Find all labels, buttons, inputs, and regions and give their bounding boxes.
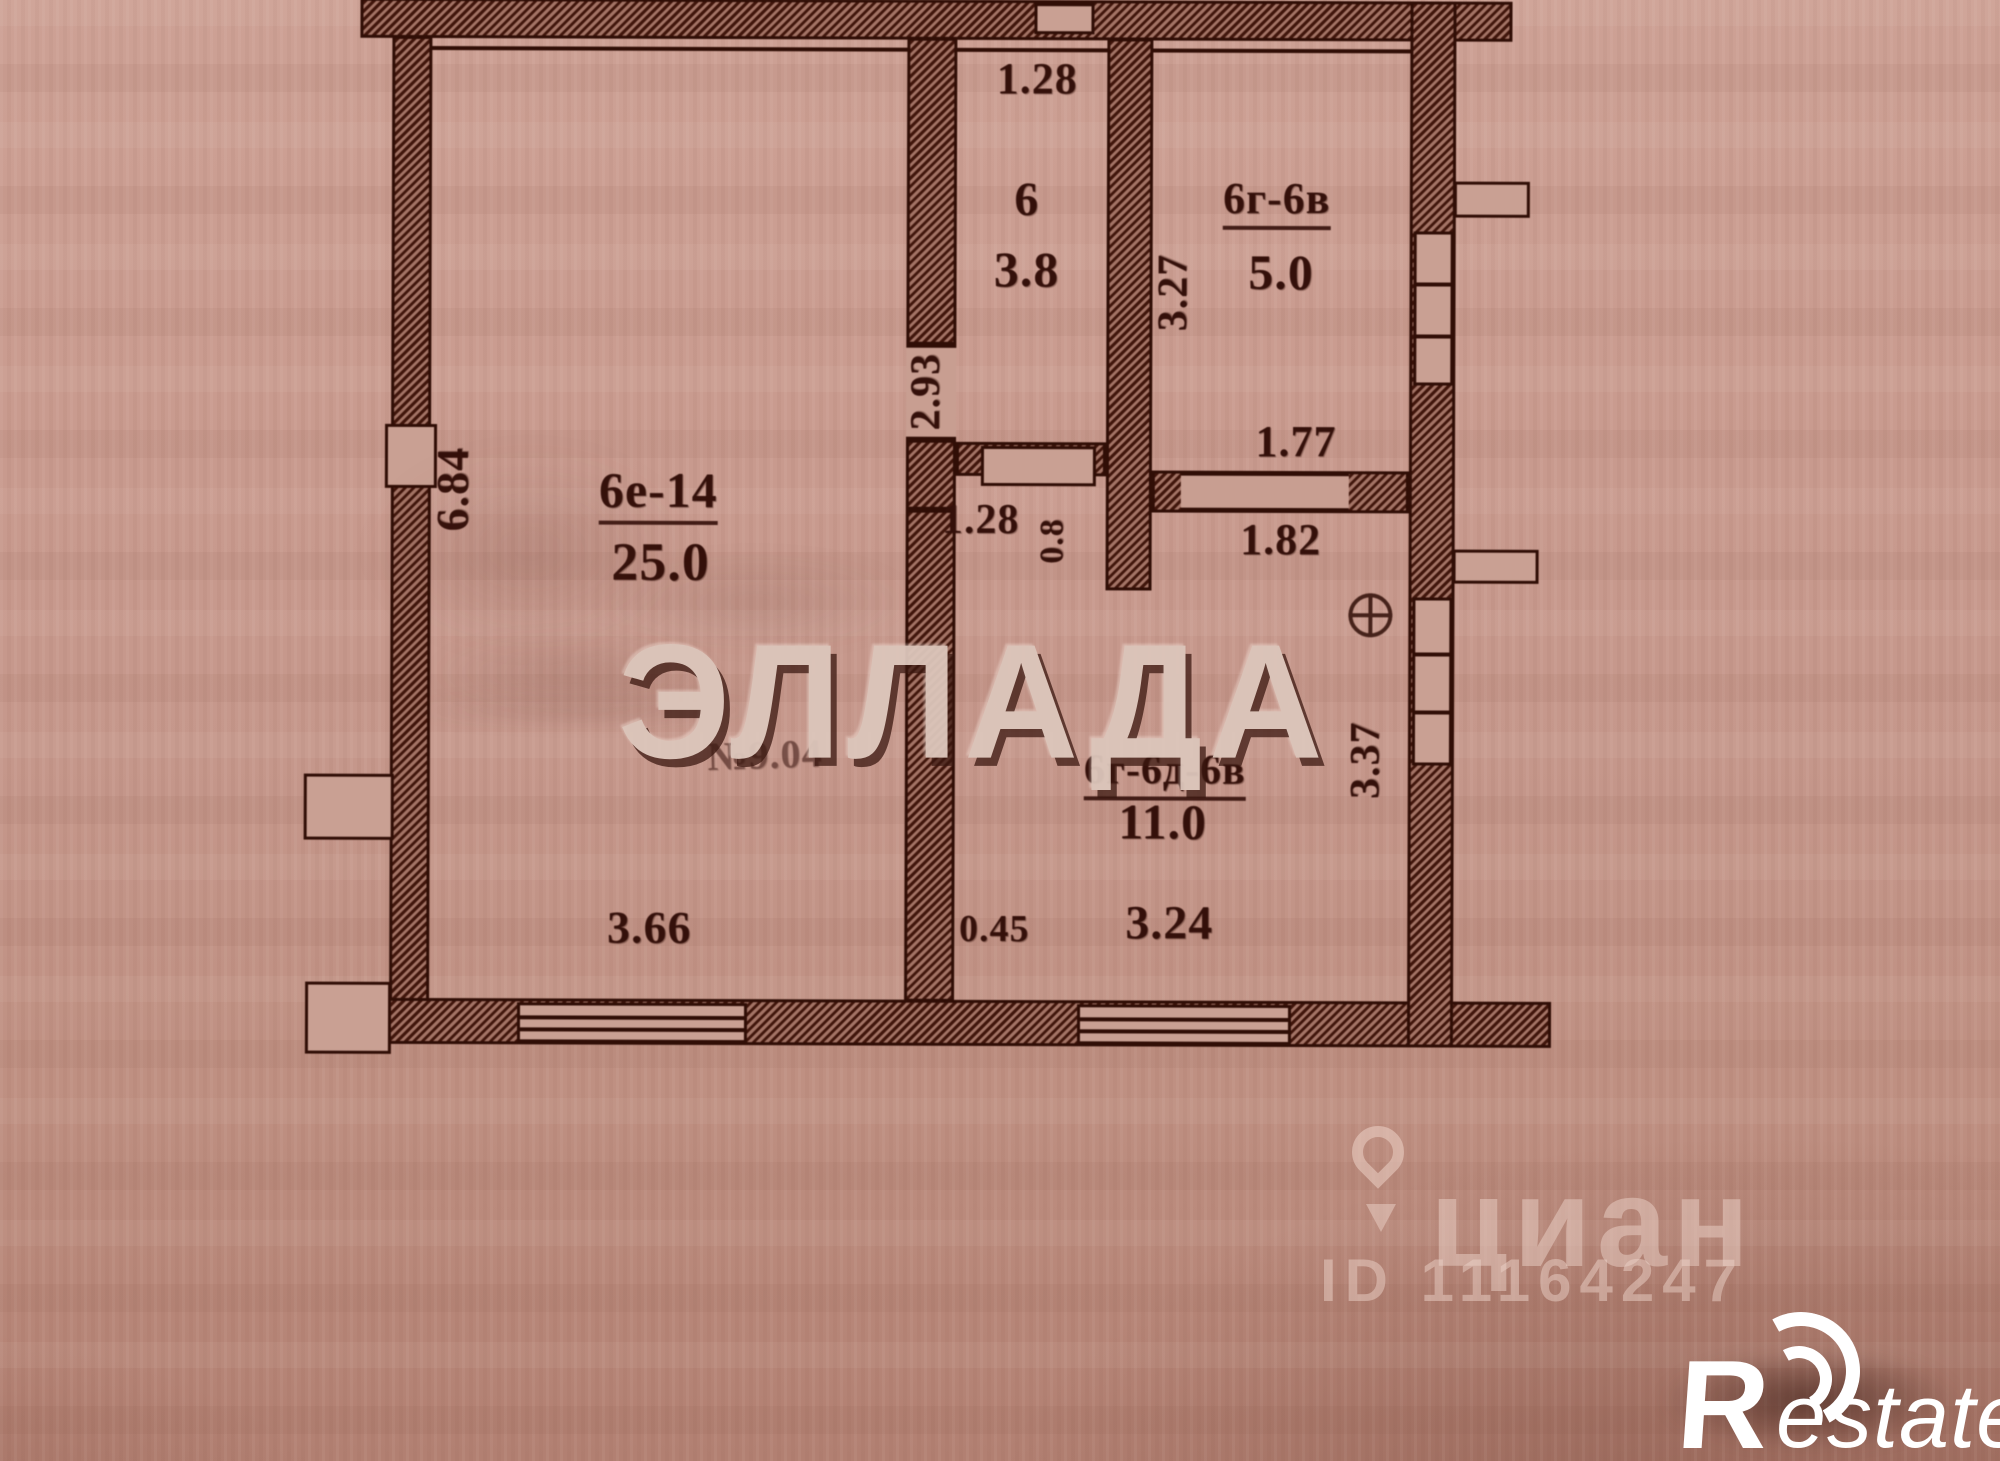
watermark-cian-id: ID 11164247 (1320, 1246, 1745, 1315)
right-wall-stub-middle (1453, 550, 1539, 584)
dim-hall-width: 1.28 (916, 498, 1046, 543)
dim-living-height: 6.84 (428, 419, 477, 559)
room-area-living: 25.0 (580, 534, 740, 591)
dim-kitchen-height: 3.37 (1344, 690, 1389, 830)
restate-logo-r: R (1674, 1342, 1774, 1461)
room-label-living: 6е-14 (551, 463, 766, 516)
dim-closet-width: 1.28 (972, 56, 1102, 103)
door-opening-storage (1181, 473, 1349, 512)
right-wall-ladder-upper (1413, 231, 1454, 385)
room-area-closet: 3.8 (957, 243, 1097, 296)
dim-hall-depth: 0.8 (1035, 491, 1071, 591)
top-wall-vent-notch (1034, 3, 1094, 34)
balcony-doorway-stub (304, 774, 394, 840)
room-area-storage: 5.0 (1224, 246, 1339, 299)
dim-storage-width: 1.77 (1226, 419, 1366, 466)
dim-ledge: 0.45 (939, 910, 1049, 950)
dim-kitchen-width: 3.24 (1084, 898, 1254, 949)
wall-right (1407, 1, 1457, 1047)
room-label-closet: 6 (992, 175, 1062, 226)
room-area-kitchen: 11.0 (1078, 795, 1248, 848)
wall-bottom-left-cap (305, 982, 391, 1054)
dim-door-span: 1.82 (1206, 517, 1356, 564)
restate-logo-estate: estate (1776, 1372, 2000, 1461)
right-wall-ladder-lower (1412, 597, 1453, 765)
door-leaf-closet (981, 446, 1096, 486)
window-line (1080, 1017, 1288, 1022)
wall-closet-right (1105, 38, 1153, 590)
window-line (520, 1027, 744, 1032)
window-line (1080, 1029, 1288, 1034)
wall-mid-upper (906, 38, 957, 345)
wall-top (360, 0, 1512, 42)
ladder-rung (1415, 710, 1449, 714)
ladder-rung (1417, 282, 1451, 286)
dim-closet-height: 2.93 (904, 322, 949, 462)
room-label-storage-text: 6г-6в (1223, 174, 1331, 230)
window-line (520, 1015, 744, 1020)
ladder-rung (1415, 652, 1449, 656)
wall-bottom (305, 998, 1551, 1048)
fixture-icon (1348, 593, 1392, 637)
dim-living-width: 3.66 (564, 903, 734, 952)
window-kitchen (1077, 1004, 1291, 1045)
watermark-ellada: ЭЛЛАДА (618, 609, 1329, 795)
cian-pin-leg (1366, 1204, 1396, 1232)
window-living-room (517, 1002, 747, 1043)
room-label-living-text: 6е-14 (599, 462, 718, 525)
fixture-cross-v (1368, 593, 1372, 637)
ladder-rung (1416, 334, 1450, 338)
dim-storage-height: 3.27 (1151, 223, 1196, 363)
scanned-floor-plan-photo: 1.28 2.93 3.27 1.77 6.84 1.28 0.8 1.82 3… (0, 0, 2000, 1461)
right-wall-stub-upper (1454, 182, 1530, 218)
room-label-storage: 6г-6в (1187, 176, 1367, 223)
